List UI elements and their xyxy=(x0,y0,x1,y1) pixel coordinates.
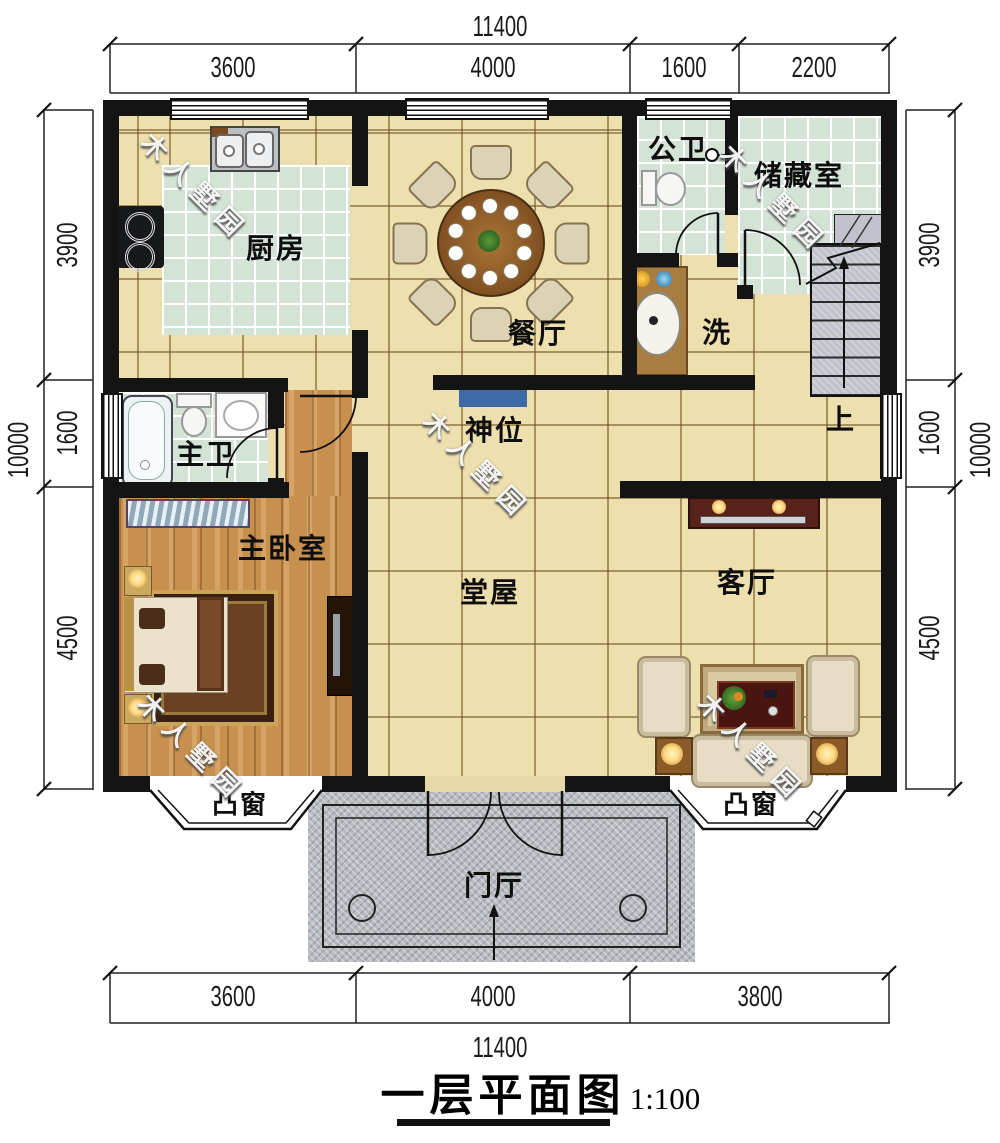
room-label-master-bedroom: 主卧室 xyxy=(238,527,328,567)
room-label-wash: 洗 xyxy=(702,311,732,351)
room-label-master-bath: 主卫 xyxy=(176,433,236,473)
floor-plan: 11400 3600 4000 1600 2200 3600 4000 3800… xyxy=(0,0,1000,1143)
dim-right-2: 1600 xyxy=(914,410,947,455)
dim-bottom-3: 3800 xyxy=(737,981,782,1014)
room-label-public-bath: 公卫 xyxy=(648,128,708,168)
dim-left-2: 1600 xyxy=(52,410,85,455)
dim-right-1: 3900 xyxy=(914,222,947,267)
dim-left-3: 4500 xyxy=(52,615,85,660)
room-label-hall: 堂屋 xyxy=(460,571,520,611)
dim-bottom-2: 4000 xyxy=(470,981,515,1014)
stairs-up-label: 上 xyxy=(826,398,856,438)
room-label-dining: 餐厅 xyxy=(508,312,568,352)
room-label-kitchen: 厨房 xyxy=(246,227,306,267)
dim-top-1: 3600 xyxy=(210,52,255,85)
dim-top-2: 4000 xyxy=(470,52,515,85)
room-label-foyer: 门厅 xyxy=(464,864,524,904)
drawing-scale: 1:100 xyxy=(630,1081,701,1117)
dim-left-total: 10000 xyxy=(3,422,36,478)
dim-top-3: 1600 xyxy=(661,52,706,85)
dim-right-3: 4500 xyxy=(914,615,947,660)
dim-top-4: 2200 xyxy=(791,52,836,85)
dim-top-total: 11400 xyxy=(473,11,528,44)
drawing-title: 一层平面图 xyxy=(381,1059,626,1123)
dim-right-total: 10000 xyxy=(965,422,998,478)
room-label-living: 客厅 xyxy=(717,561,777,601)
dim-left-1: 3900 xyxy=(52,222,85,267)
dim-bottom-1: 3600 xyxy=(210,981,255,1014)
